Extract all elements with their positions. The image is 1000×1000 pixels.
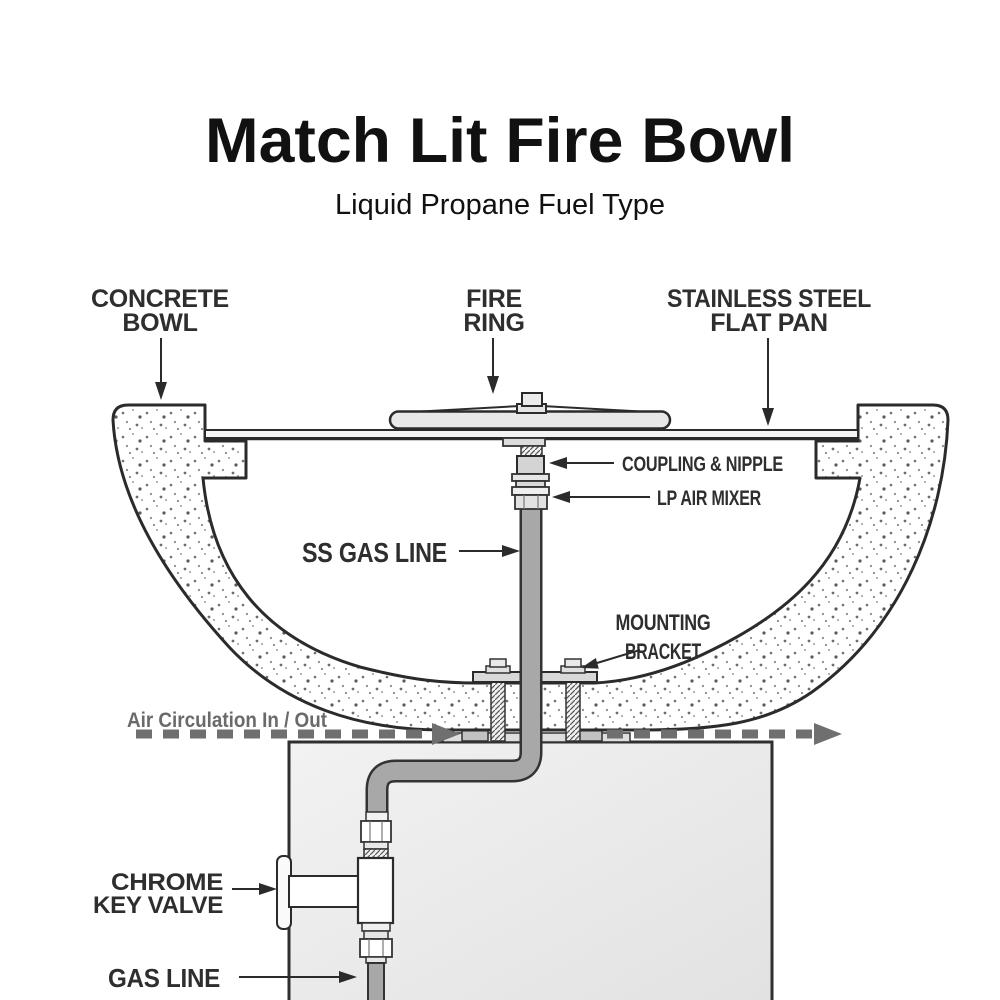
callout-lp-air-mixer: LP AIR MIXER (552, 487, 761, 510)
page-title: Match Lit Fire Bowl (205, 106, 795, 176)
callout-mounting-bracket: MOUNTING BRACKET (581, 610, 711, 669)
page-subtitle: Liquid Propane Fuel Type (335, 189, 665, 221)
ss-gas-line-label: SS GAS LINE (302, 537, 447, 568)
concrete-bowl-label-line2: BOWL (122, 309, 197, 337)
air-flow-arrow-right (814, 723, 842, 745)
ring-nipple-cap (522, 393, 542, 406)
valve-body (358, 858, 393, 923)
coupling-nipple-shape (503, 438, 545, 474)
fire-bowl-diagram-page: Match Lit Fire Bowl Liquid Propane Fuel … (0, 0, 1000, 1000)
lp-air-mixer-label: LP AIR MIXER (657, 487, 761, 510)
diagram-canvas: Match Lit Fire Bowl Liquid Propane Fuel … (0, 0, 1000, 1000)
callout-chrome-key-valve: CHROME KEY VALVE (93, 869, 277, 919)
flat-pan-label-line2: FLAT PAN (710, 309, 828, 337)
fire-ring-label-line2: RING (463, 309, 524, 337)
coupling-nipple-label: COUPLING & NIPPLE (622, 453, 783, 476)
callout-ss-gas-line: SS GAS LINE (302, 537, 520, 568)
valve-stem (289, 876, 359, 907)
chrome-key-valve-label-line2: KEY VALVE (93, 892, 223, 919)
lp-air-mixer-shape (512, 474, 549, 509)
callout-air-circulation: Air Circulation In / Out (127, 709, 327, 732)
callout-concrete-bowl: CONCRETE BOWL (91, 285, 229, 400)
air-circulation-label: Air Circulation In / Out (127, 709, 327, 732)
gas-line-lower (368, 963, 384, 1000)
heading: Match Lit Fire Bowl Liquid Propane Fuel … (205, 106, 795, 221)
gas-line-label: GAS LINE (108, 963, 220, 993)
callout-fire-ring: FIRE RING (463, 285, 524, 394)
callout-coupling-nipple: COUPLING & NIPPLE (549, 453, 783, 476)
fire-ring-shape (390, 393, 670, 429)
callout-flat-pan: STAINLESS STEEL FLAT PAN (667, 285, 871, 426)
mounting-bracket-label-line1: MOUNTING (616, 610, 711, 635)
